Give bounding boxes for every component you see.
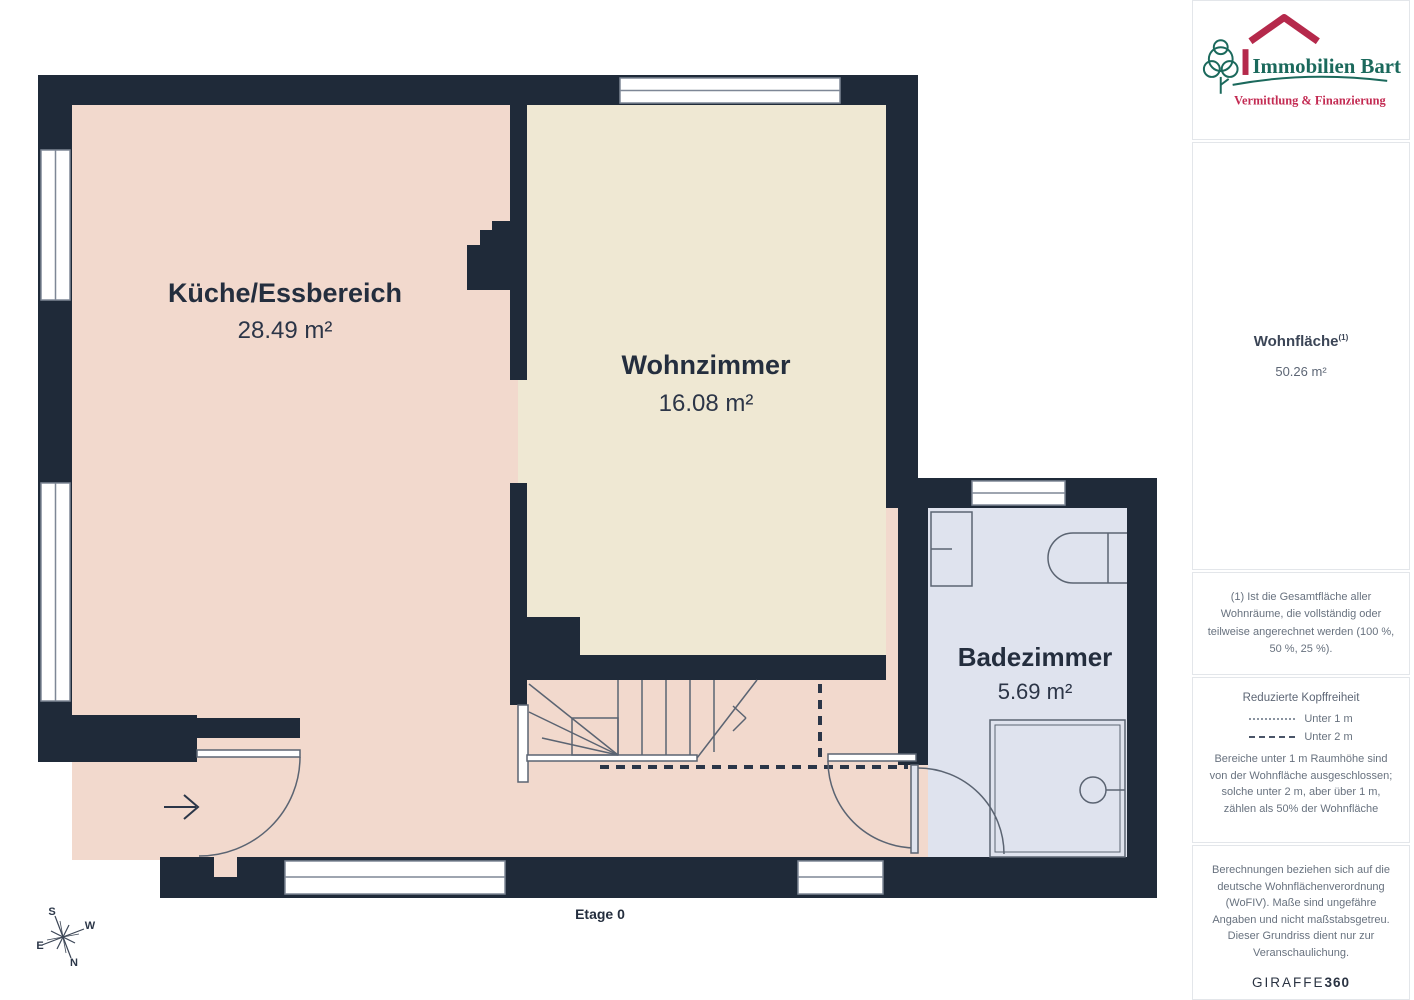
living-area-label: Wohnfläche (1254, 333, 1339, 350)
compass-west-label: W (85, 920, 96, 932)
living-room-area: 16.08 m² (659, 390, 754, 417)
window-bottom-left (285, 861, 505, 894)
info-sidebar: Immobilien Bart Vermittlung & Finanzieru… (1192, 0, 1412, 1000)
living-area-footnote-marker: (1) (1338, 333, 1348, 342)
window-left-lower (41, 483, 70, 701)
living-area-card: Wohnfläche(1) 50.26 m² (1192, 142, 1410, 570)
living-area-value: 50.26 m² (1275, 364, 1326, 379)
living-room-label: Wohnzimmer (621, 350, 791, 380)
legend-under-1m: Unter 1 m (1205, 713, 1397, 725)
bathroom-room-label: Badezimmer (958, 642, 1113, 672)
disclaimer-text: Berechnungen beziehen sich auf die deuts… (1205, 862, 1397, 961)
compass-icon (42, 916, 84, 958)
floorplan-page: S W E N Küche/Essbereich 28.49 m² Wohnzi… (0, 0, 1414, 1000)
dashed-line-icon (1249, 736, 1295, 738)
compass-east-label: E (36, 940, 43, 952)
kitchen-room-area: 28.49 m² (238, 317, 333, 344)
logo-subtitle: Vermittlung & Finanzierung (1234, 94, 1386, 108)
window-bathroom (972, 481, 1065, 505)
legend-under-2m: Unter 2 m (1205, 731, 1397, 743)
company-logo: Immobilien Bart Vermittlung & Finanzieru… (1193, 1, 1409, 139)
headroom-card: Reduzierte Kopffreiheit Unter 1 m Unter … (1192, 677, 1410, 843)
floor-label: Etage 0 (575, 906, 625, 922)
dotted-line-icon (1249, 718, 1295, 720)
compass-south-label: S (48, 906, 55, 918)
giraffe360-brand: GIRAFFE360 (1205, 975, 1397, 990)
tree-icon (1204, 40, 1238, 94)
legend-under-1m-label: Unter 1 m (1304, 713, 1352, 725)
logo-swoosh (1233, 77, 1388, 85)
brand-360: 360 (1324, 975, 1350, 990)
logo-card: Immobilien Bart Vermittlung & Finanzieru… (1192, 0, 1410, 140)
legend-under-2m-label: Unter 2 m (1304, 731, 1352, 743)
window-top (620, 78, 840, 103)
brand-giraffe: GIRAFFE (1252, 975, 1325, 990)
footnote-text: (1) Ist die Gesamtfläche aller Wohnräume… (1193, 589, 1409, 657)
logo-title: Immobilien Bart (1252, 55, 1401, 78)
headroom-title: Reduzierte Kopffreiheit (1205, 692, 1397, 704)
window-left-upper (41, 150, 70, 300)
floorplan-drawing: S W E N Küche/Essbereich 28.49 m² Wohnzi… (0, 0, 1190, 1000)
headroom-note: Bereiche unter 1 m Raumhöhe sind von der… (1205, 751, 1397, 817)
bathroom-room-area: 5.69 m² (998, 679, 1073, 704)
window-bottom-right (798, 861, 883, 894)
living-area-title: Wohnfläche(1) (1254, 333, 1349, 350)
compass-north-label: N (70, 957, 78, 969)
kitchen-room-label: Küche/Essbereich (168, 278, 402, 308)
wall-notch (214, 857, 237, 877)
footnote-card: (1) Ist die Gesamtfläche aller Wohnräume… (1192, 572, 1410, 675)
disclaimer-card: Berechnungen beziehen sich auf die deuts… (1192, 845, 1410, 1000)
